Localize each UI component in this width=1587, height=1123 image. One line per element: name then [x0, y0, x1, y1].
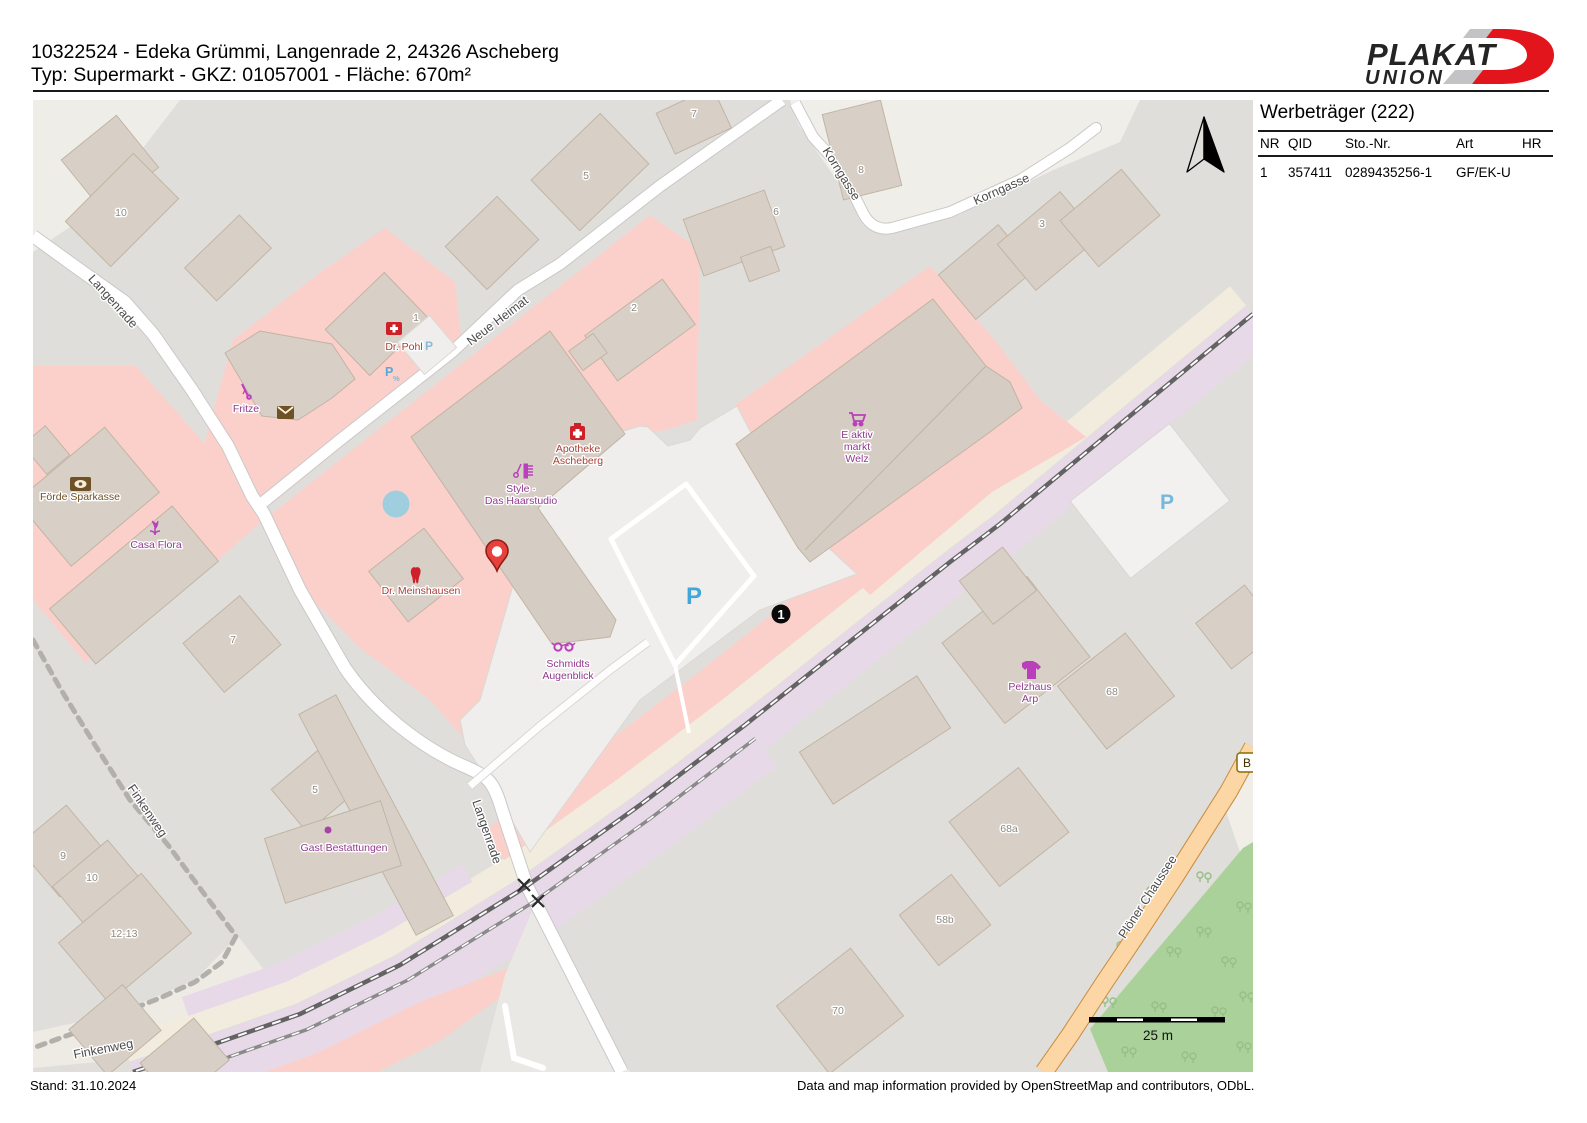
svg-text:Ascheberg: Ascheberg	[553, 455, 603, 467]
svg-text:markt: markt	[844, 441, 870, 453]
svg-text:Das Haarstudio: Das Haarstudio	[485, 495, 558, 507]
svg-text:Welz: Welz	[845, 453, 868, 465]
svg-text:1: 1	[413, 312, 419, 324]
svg-text:Casa Flora: Casa Flora	[130, 539, 182, 551]
svg-text:5: 5	[583, 170, 589, 182]
svg-text:7: 7	[691, 108, 697, 120]
svg-text:6: 6	[773, 206, 779, 218]
svg-text:Dr. Meinshausen: Dr. Meinshausen	[382, 585, 461, 597]
svg-text:Gast Bestattungen: Gast Bestattungen	[301, 842, 388, 854]
svg-text:Apotheke: Apotheke	[556, 443, 601, 455]
svg-text:10: 10	[86, 872, 98, 884]
svg-text:P: P	[425, 339, 433, 353]
svg-text:68: 68	[1106, 686, 1118, 698]
svg-text:E aktiv: E aktiv	[841, 429, 873, 441]
svg-text:Pelzhaus: Pelzhaus	[1008, 681, 1051, 693]
svg-text:3: 3	[1039, 218, 1045, 230]
svg-text:Fritze: Fritze	[233, 403, 259, 415]
svg-text:%: %	[393, 374, 400, 383]
svg-text:Style ·: Style ·	[506, 483, 536, 495]
svg-text:7: 7	[230, 634, 236, 646]
svg-text:70: 70	[832, 1005, 844, 1017]
svg-text:25 m: 25 m	[1143, 1028, 1173, 1043]
svg-text:Dr. Pohl: Dr. Pohl	[385, 341, 422, 353]
svg-text:68a: 68a	[1000, 823, 1018, 835]
svg-text:B: B	[1243, 756, 1251, 770]
svg-text:Arp: Arp	[1022, 693, 1039, 705]
svg-text:12-13: 12-13	[111, 928, 138, 940]
svg-text:5: 5	[312, 784, 318, 796]
svg-text:Förde Sparkasse: Förde Sparkasse	[40, 491, 120, 503]
svg-text:58b: 58b	[936, 914, 954, 926]
svg-text:9: 9	[60, 850, 66, 862]
svg-text:2: 2	[631, 302, 637, 314]
svg-text:8: 8	[858, 164, 864, 176]
svg-text:1: 1	[777, 607, 784, 622]
svg-text:Augenblick: Augenblick	[542, 670, 594, 682]
svg-text:10: 10	[115, 207, 127, 219]
svg-text:UNION: UNION	[1365, 67, 1443, 89]
svg-text:Schmidts: Schmidts	[546, 658, 589, 670]
svg-text:P: P	[1160, 491, 1174, 514]
svg-text:P: P	[686, 583, 702, 610]
